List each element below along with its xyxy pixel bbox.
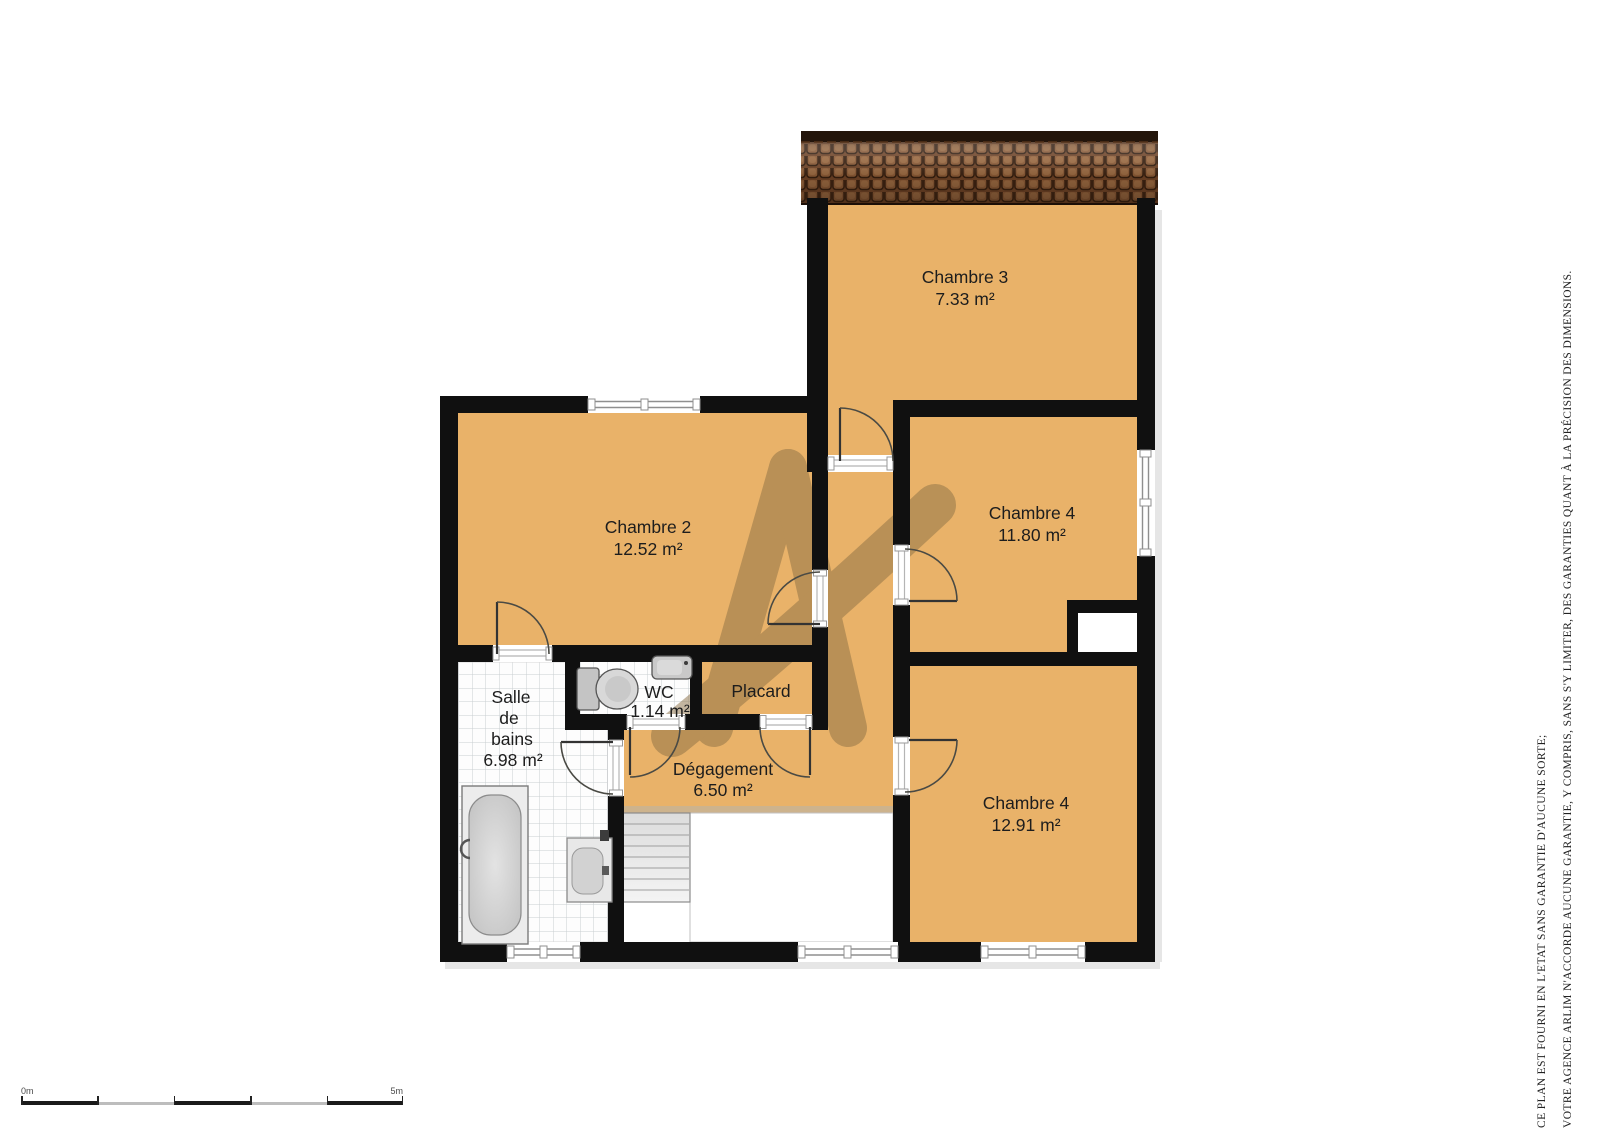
room-label-chambre2-name: Chambre 2 xyxy=(605,517,692,537)
room-label-degagement-name: Dégagement xyxy=(673,759,773,779)
window-chambre4a-right xyxy=(1137,450,1155,556)
scale-bar-tick xyxy=(174,1096,176,1105)
window-chambre4b-bottom xyxy=(981,942,1085,962)
room-label-chambre3-name: Chambre 3 xyxy=(922,267,1009,287)
disclaimer-line-2: VOTRE AGENCE ARLIM N'ACCORDE AUCUNE GARA… xyxy=(1562,270,1574,1128)
scale-bar-end-label: 5m xyxy=(390,1086,403,1096)
threshold-bathroom-chambre2 xyxy=(493,645,552,662)
room-label-chambre2-area: 12.52 m² xyxy=(613,539,682,559)
room-label-chambre4a-name: Chambre 4 xyxy=(989,503,1076,523)
room-label-bathroom-line2: de xyxy=(499,708,518,728)
room-label-bathroom-area: 6.98 m² xyxy=(483,750,542,770)
wall-segment xyxy=(893,400,910,545)
wall-segment xyxy=(893,652,1155,666)
window-chambre2-top xyxy=(588,396,700,413)
threshold-chambre4b xyxy=(893,737,910,795)
wall-segment xyxy=(440,396,458,962)
scale-bar-segment xyxy=(21,1101,97,1105)
room-label-wc-name: WC xyxy=(644,682,673,702)
room-label-chambre4b-name: Chambre 4 xyxy=(983,793,1070,813)
roof xyxy=(801,131,1158,205)
wall-segment xyxy=(440,942,507,962)
threshold-placard xyxy=(760,714,812,730)
wall-segment xyxy=(898,942,981,962)
threshold-chambre3 xyxy=(828,455,893,472)
scale-bar-segment xyxy=(327,1101,403,1105)
scale-bar-start-label: 0m xyxy=(21,1086,34,1096)
bathroom-sink xyxy=(567,830,612,902)
scale-bar-segment xyxy=(174,1101,250,1105)
scale-bar-tick xyxy=(327,1096,329,1105)
room-label-bathroom-line1: Salle xyxy=(492,687,531,707)
faucet-icon xyxy=(602,866,609,875)
duct-niche xyxy=(1078,613,1137,652)
wall-segment xyxy=(608,730,624,740)
wall-segment xyxy=(440,396,588,413)
wall-segment xyxy=(685,714,760,730)
wall-segment xyxy=(1067,600,1078,652)
room-label-bathroom-line3: bains xyxy=(491,729,533,749)
wall-segment xyxy=(812,413,828,570)
scale-bar: 0m 5m xyxy=(21,1086,403,1110)
wall-segment xyxy=(893,795,910,962)
threshold-chambre4a xyxy=(893,545,910,605)
wall-segment xyxy=(1137,198,1155,450)
window-stairwell-bottom xyxy=(798,942,898,962)
wall-segment xyxy=(893,605,910,737)
scale-bar-segment xyxy=(250,1102,326,1105)
room-label-placard-name: Placard xyxy=(731,681,790,701)
room-label-chambre4b-area: 12.91 m² xyxy=(991,815,1060,835)
toilet xyxy=(577,668,638,710)
threshold-chambre2 xyxy=(812,570,828,627)
room-label-chambre4a-area: 11.80 m² xyxy=(998,525,1066,545)
scale-bar-tick xyxy=(97,1096,99,1105)
wall-shadow xyxy=(445,962,1160,969)
wall-segment xyxy=(893,400,1137,417)
faucet-icon xyxy=(684,661,688,665)
disclaimer-line-1: CE PLAN EST FOURNI EN L'ETAT SANS GARANT… xyxy=(1536,734,1548,1128)
bathtub xyxy=(461,786,528,944)
wall-segment xyxy=(700,396,807,413)
wall-segment xyxy=(565,714,627,730)
wall-segment xyxy=(580,942,798,962)
room-label-wc-area: 1.14 m² xyxy=(630,701,689,721)
scale-bar-segments xyxy=(21,1101,403,1105)
faucet-icon xyxy=(600,830,609,841)
scale-bar-segment xyxy=(97,1102,173,1105)
floorplan-page: Chambre 3 7.33 m² Chambre 2 12.52 m² Cha… xyxy=(0,0,1600,1132)
wall-segment xyxy=(458,645,493,662)
floorplan-svg: Chambre 3 7.33 m² Chambre 2 12.52 m² Cha… xyxy=(0,0,1600,1132)
wc-sink xyxy=(652,656,692,679)
staircase xyxy=(617,813,690,902)
room-label-degagement-area: 6.50 m² xyxy=(693,780,752,800)
stairwell-void xyxy=(690,813,893,942)
scale-bar-tick xyxy=(21,1096,23,1105)
scale-bar-tick xyxy=(250,1096,252,1105)
scale-bar-tick xyxy=(402,1096,404,1105)
wall-segment xyxy=(1137,556,1155,962)
threshold-bathroom-degagement xyxy=(608,740,624,796)
wall-segment xyxy=(1085,942,1155,962)
wall-segment xyxy=(812,627,828,730)
window-bathroom-bottom xyxy=(507,942,580,962)
wall-shadow xyxy=(1155,210,1162,962)
room-label-chambre3-area: 7.33 m² xyxy=(935,289,994,309)
